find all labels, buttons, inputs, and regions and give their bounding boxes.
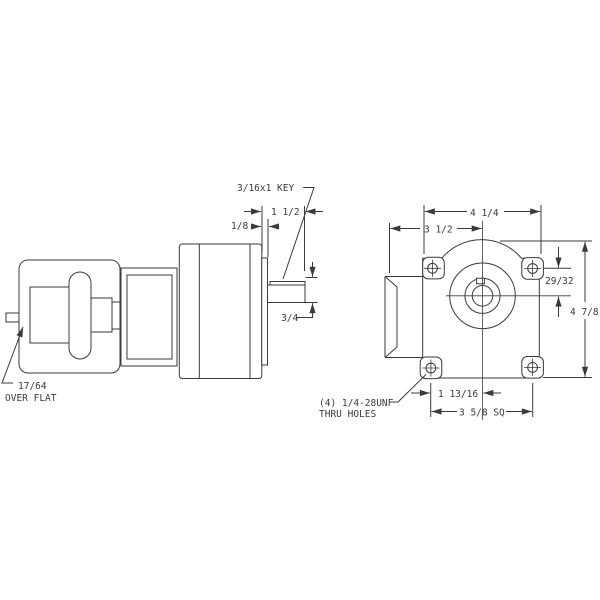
keyway-slot bbox=[477, 278, 485, 284]
thru-holes-callout: (4) 1/4-28UNF THRU HOLES bbox=[319, 375, 426, 421]
dim-boss-width-text: 1/8 bbox=[231, 221, 248, 232]
thru-holes-text-2: THRU HOLES bbox=[319, 409, 376, 420]
rear-shaft-text-2: OVER FLAT bbox=[5, 393, 57, 404]
dim-center-offset-text: 29/32 bbox=[545, 276, 574, 287]
motor-end-capsule bbox=[69, 272, 91, 359]
side-view bbox=[6, 244, 305, 379]
rear-shaft-text-1: 17/64 bbox=[18, 381, 47, 392]
motor-protrusion bbox=[385, 277, 423, 358]
dim-hole-to-center-text: 1 13/16 bbox=[438, 389, 478, 400]
motor-hub-step-2 bbox=[112, 302, 120, 329]
dim-face-to-center-text: 3 1/2 bbox=[424, 225, 453, 236]
dim-overall-height-text: 4 7/8 bbox=[570, 307, 599, 318]
key-label: 3/16x1 KEY bbox=[237, 183, 294, 194]
output-shaft bbox=[268, 285, 306, 303]
engineering-drawing: 3/16x1 KEY 1 1/2 1/8 3/4 bbox=[0, 0, 600, 600]
dim-overall-width-text: 4 1/4 bbox=[470, 208, 499, 219]
key-leader-line bbox=[283, 188, 314, 280]
rear-shaft-stub bbox=[6, 313, 20, 322]
output-face-plate bbox=[262, 258, 268, 365]
dim-shaft-diameter-text: 3/4 bbox=[281, 313, 298, 324]
shaft-key bbox=[270, 282, 305, 286]
dim-boss-width: 1/8 bbox=[231, 221, 279, 232]
dim-bolt-square-text: 3 5/8 SQ bbox=[459, 408, 505, 419]
drawing-canvas: 3/16x1 KEY 1 1/2 1/8 3/4 bbox=[0, 0, 600, 600]
adapter-housing bbox=[121, 268, 177, 366]
dim-shaft-length-text: 1 1/2 bbox=[271, 207, 300, 218]
gearbox-housing bbox=[179, 244, 261, 379]
motor-hub-step-1 bbox=[91, 298, 112, 332]
thru-holes-text-1: (4) 1/4-28UNF bbox=[319, 398, 394, 409]
